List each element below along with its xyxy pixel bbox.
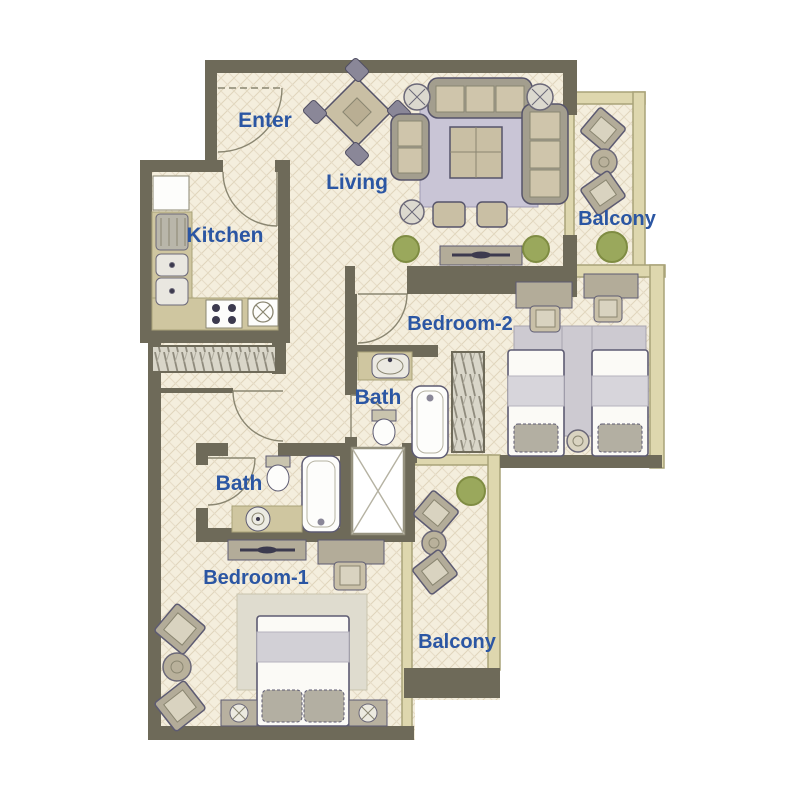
tv-console-icon <box>440 246 522 265</box>
double-bed-icon <box>257 616 349 726</box>
room-label-kitchen: Kitchen <box>186 224 263 247</box>
hall-wardrobe-icon <box>152 346 276 372</box>
bathtub-icon <box>302 456 340 532</box>
stove-icon <box>206 300 242 328</box>
balcony-table-icon <box>422 531 446 555</box>
coffee-table-icon <box>450 127 502 178</box>
fridge-icon <box>153 176 189 210</box>
bedroom2-rug-runner <box>562 326 592 436</box>
sofa-top-icon <box>428 78 532 118</box>
dish-drainer-icon <box>156 214 188 250</box>
toilet-icon <box>266 456 290 491</box>
room-label-bath-2: Bath <box>355 386 402 409</box>
plant-icon <box>457 477 485 505</box>
shaft-icon <box>352 448 404 534</box>
room-label-living: Living <box>326 171 388 194</box>
room-label-bedroom-1: Bedroom-1 <box>203 567 309 589</box>
washbasin-icon <box>372 354 409 378</box>
washbasin-icon <box>246 507 270 531</box>
plant-icon <box>597 232 627 262</box>
loveseat-icon <box>391 114 429 180</box>
room-label-enter: Enter <box>238 109 292 132</box>
room-label-balcony-bottom: Balcony <box>418 631 497 653</box>
toilet-icon <box>372 410 396 445</box>
floor-plan-canvas: Enter Living Kitchen Balcony Bedroom-2 B… <box>0 0 800 800</box>
kitchen-sink-icon <box>156 254 188 305</box>
room-label-balcony-top: Balcony <box>578 208 657 230</box>
sofa-right-icon <box>522 104 568 204</box>
twin-bed-icon <box>508 350 564 456</box>
balcony-table-icon <box>163 653 191 681</box>
nightstand-icon <box>221 700 257 726</box>
stool-icon <box>567 430 589 452</box>
bathtub-icon <box>412 386 448 458</box>
floor-plan-drawing: Enter Living Kitchen Balcony Bedroom-2 B… <box>0 0 800 800</box>
room-label-bath-1: Bath <box>216 472 263 495</box>
prep-sink-icon <box>248 299 278 326</box>
balcony-top-rail-east <box>633 92 645 277</box>
bedroom2-window-bay-rail <box>650 265 664 468</box>
twin-bed-icon <box>592 350 648 456</box>
balcony-table-icon <box>591 149 617 175</box>
room-label-bedroom-2: Bedroom-2 <box>407 313 513 335</box>
tv-console-icon <box>228 540 306 560</box>
bedroom1-window <box>402 540 412 728</box>
nightstand-icon <box>349 700 387 726</box>
bedroom2-wardrobe-icon <box>452 352 484 452</box>
